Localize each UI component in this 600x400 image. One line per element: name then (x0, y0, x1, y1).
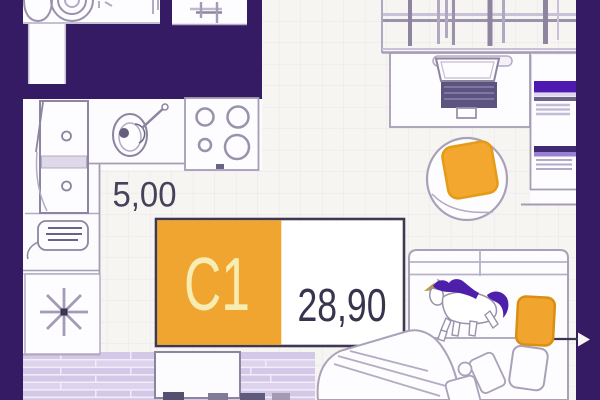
svg-text:28,90: 28,90 (298, 279, 387, 331)
svg-text:5,00: 5,00 (113, 176, 177, 215)
svg-text:C1: C1 (184, 242, 250, 326)
